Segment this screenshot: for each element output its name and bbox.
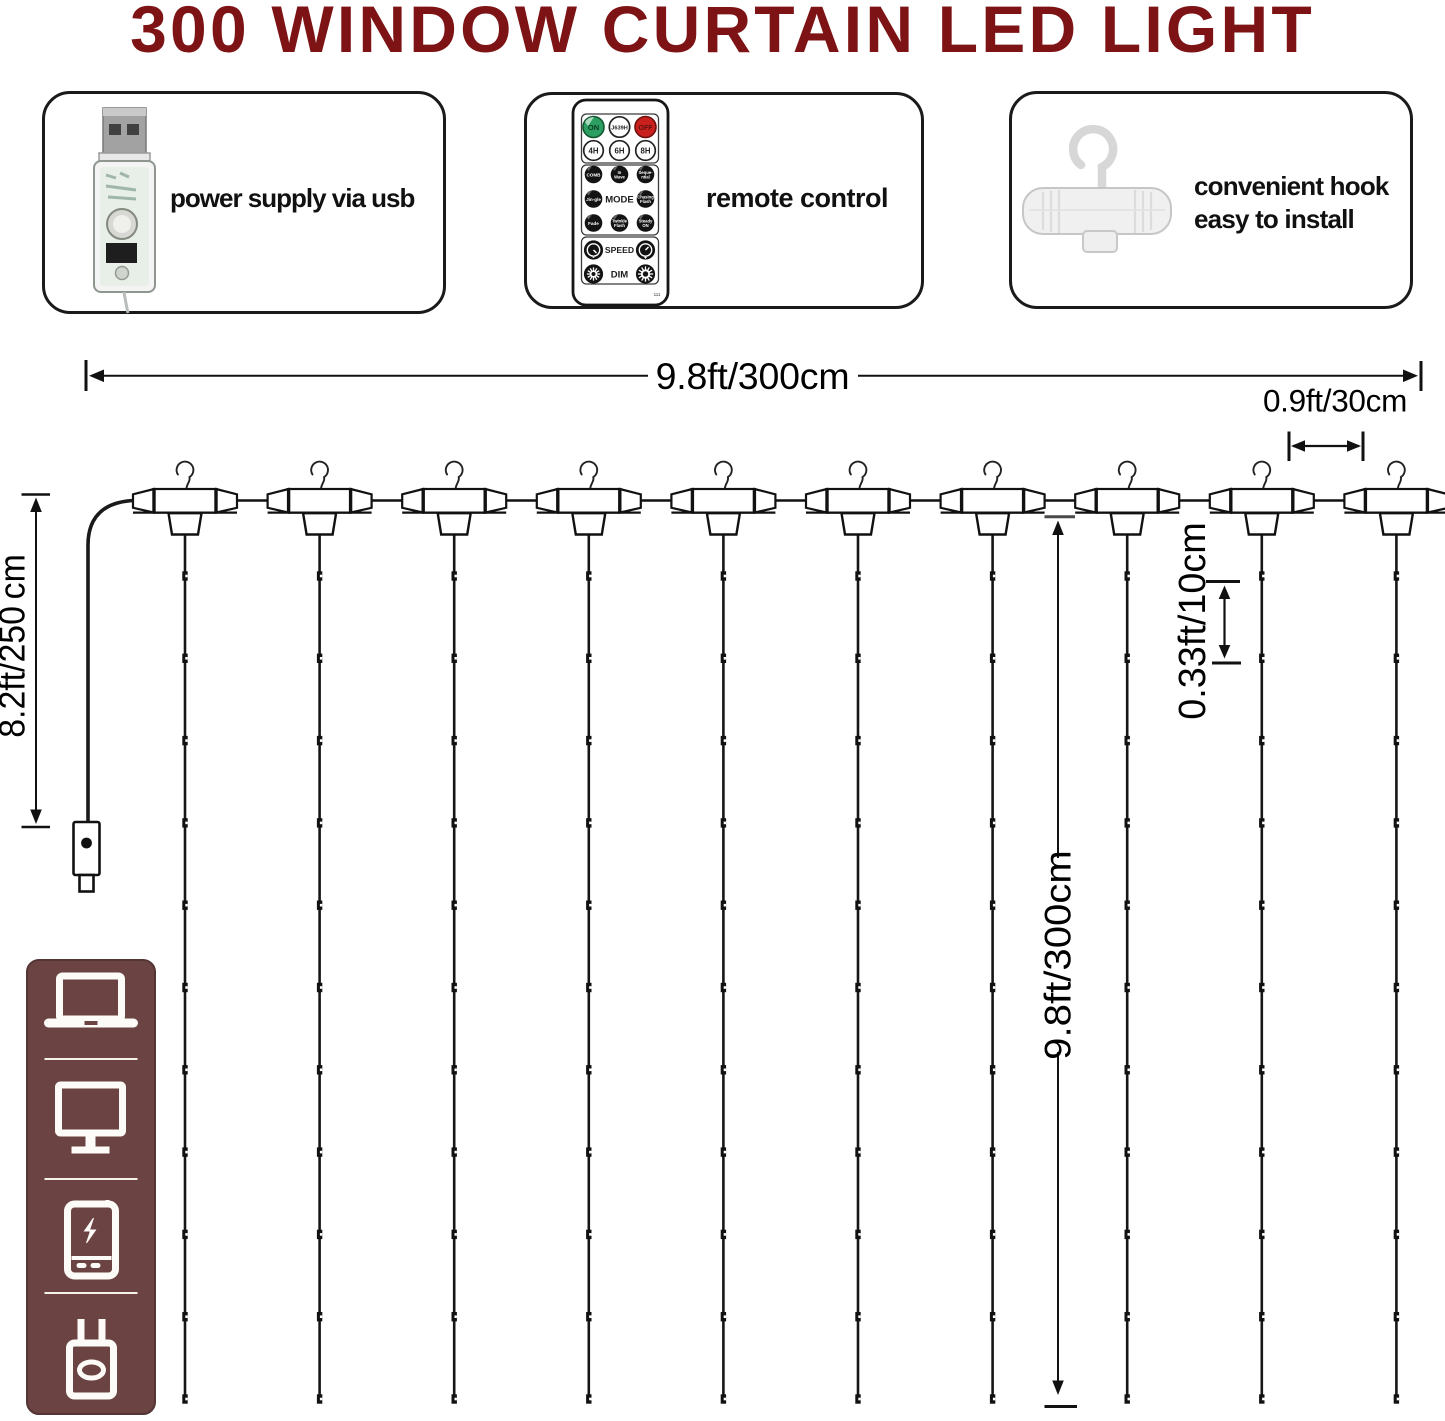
svg-text:9.8ft/300cm: 9.8ft/300cm bbox=[656, 355, 850, 397]
svg-text:0.9ft/30cm: 0.9ft/30cm bbox=[1263, 383, 1407, 419]
svg-text:9.8ft/300cm: 9.8ft/300cm bbox=[1038, 850, 1079, 1060]
svg-text:0.33ft/10cm: 0.33ft/10cm bbox=[1172, 522, 1214, 719]
svg-text:8.2ft/250 cm: 8.2ft/250 cm bbox=[0, 554, 33, 738]
